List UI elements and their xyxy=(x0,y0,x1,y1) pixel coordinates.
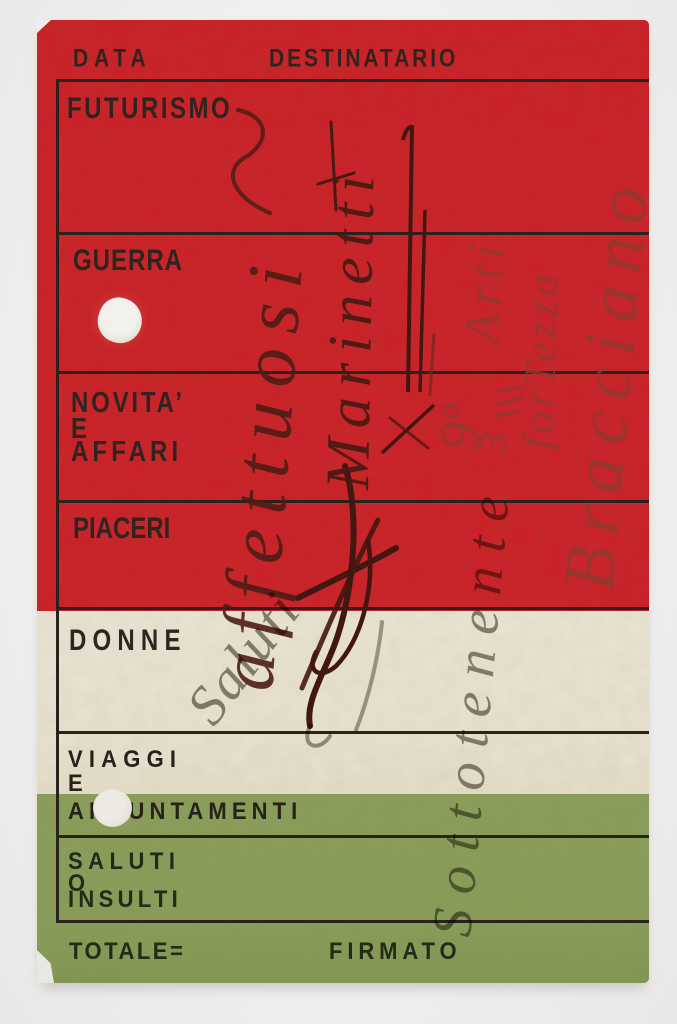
svg-text:Sottotenente: Sottotenente xyxy=(421,479,523,939)
svg-text:Saluti: Saluti xyxy=(175,580,314,736)
